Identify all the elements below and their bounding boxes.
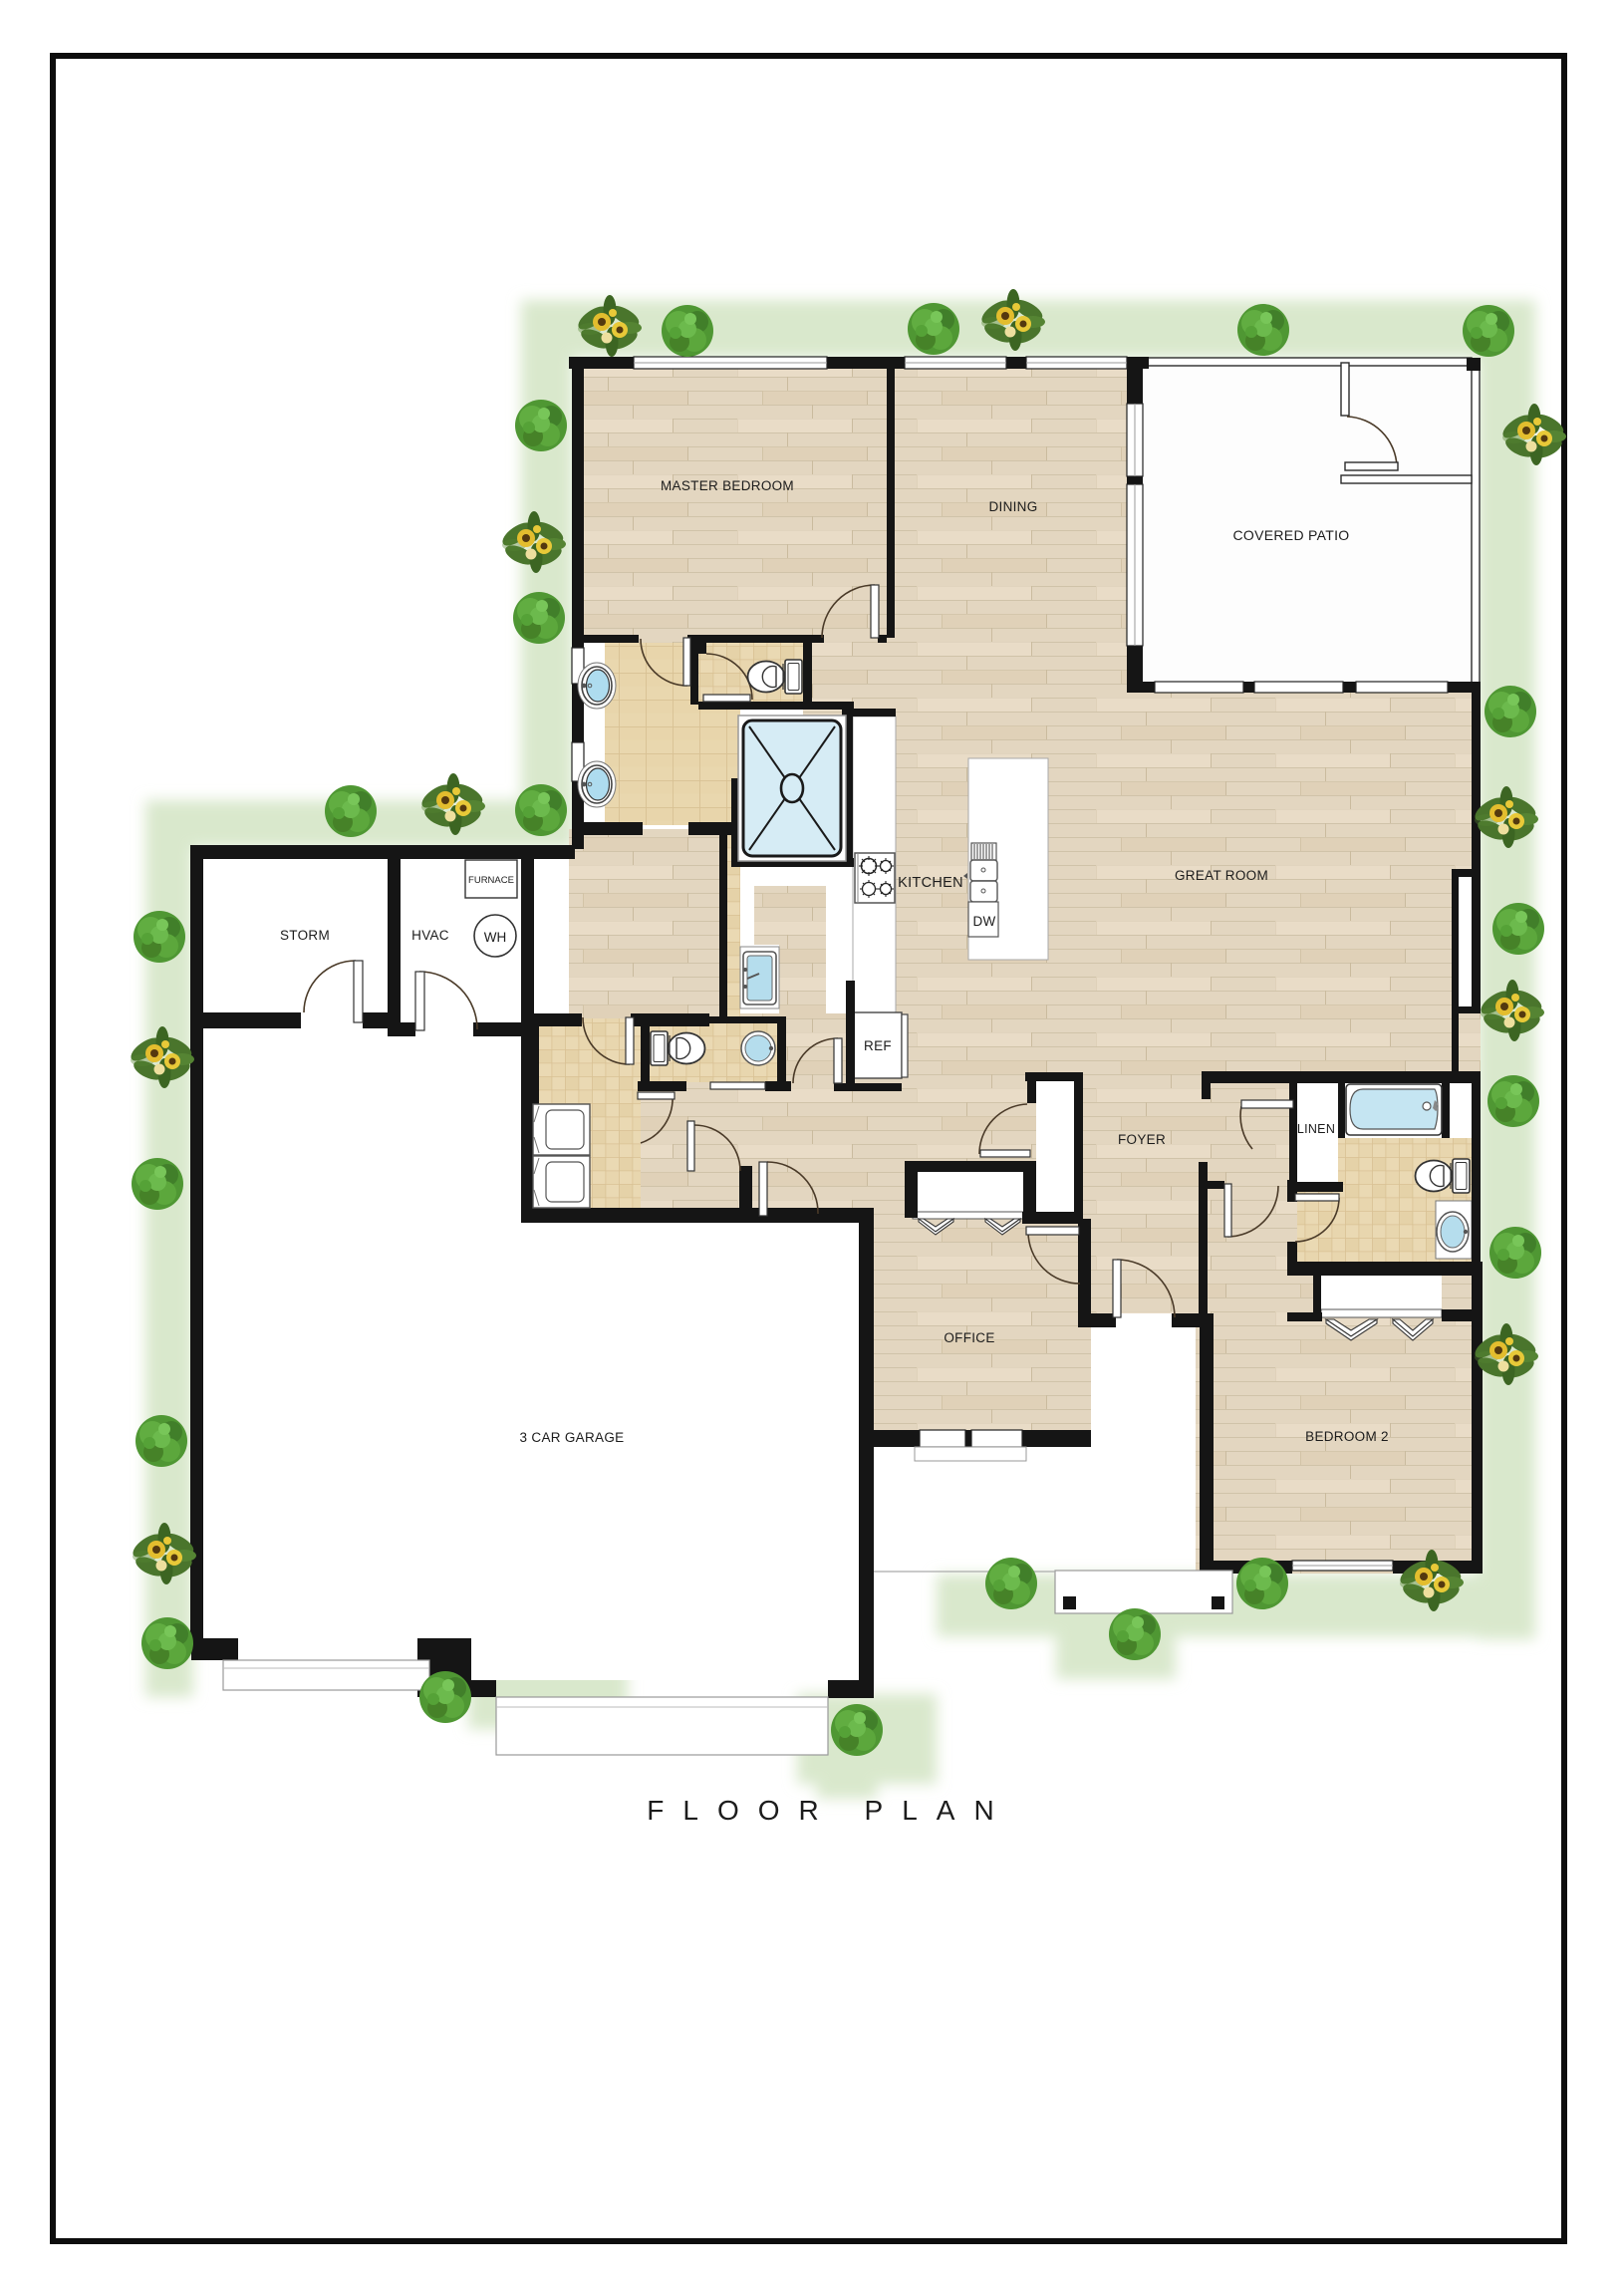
svg-text:DW: DW [972,914,995,929]
svg-text:WH: WH [484,930,507,945]
svg-text:COVERED PATIO: COVERED PATIO [1233,527,1350,543]
svg-text:KITCHEN: KITCHEN [898,875,963,891]
svg-text:FOYER: FOYER [1118,1132,1166,1147]
svg-text:MASTER BEDROOM: MASTER BEDROOM [661,478,794,493]
svg-text:HVAC: HVAC [411,928,449,943]
svg-text:FURNACE: FURNACE [468,875,514,886]
svg-text:LINEN: LINEN [1297,1122,1335,1136]
svg-text:FLOOR PLAN: FLOOR PLAN [647,1795,1012,1826]
svg-text:OFFICE: OFFICE [944,1330,994,1345]
svg-text:REF: REF [864,1038,892,1053]
svg-text:DINING: DINING [988,499,1037,514]
svg-text:GREAT ROOM: GREAT ROOM [1175,868,1268,883]
svg-text:BEDROOM 2: BEDROOM 2 [1305,1429,1389,1444]
svg-text:STORM: STORM [280,928,330,943]
svg-text:3 CAR GARAGE: 3 CAR GARAGE [520,1430,625,1445]
